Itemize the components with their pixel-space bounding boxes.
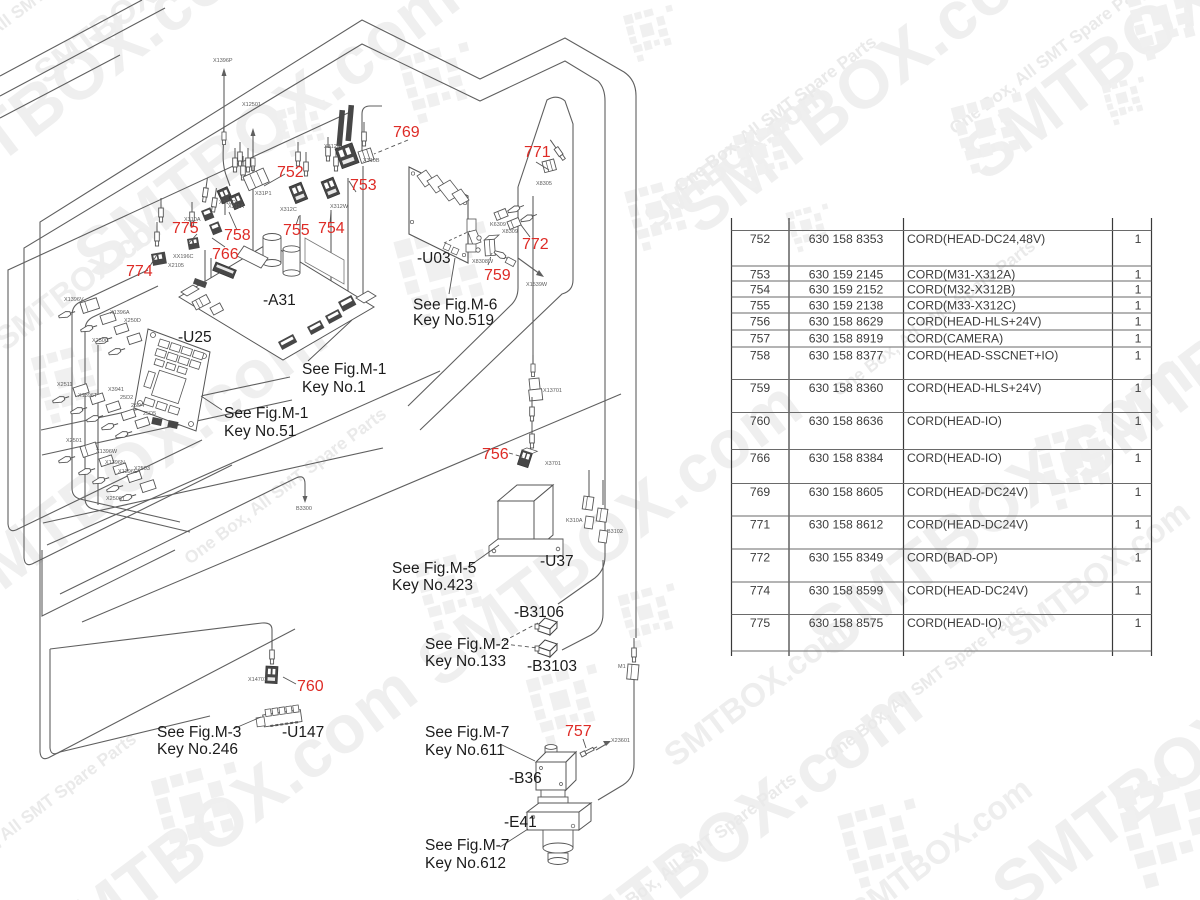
svg-text:CORD(HEAD-DC24,48V): CORD(HEAD-DC24,48V) xyxy=(907,232,1045,246)
svg-text:X310A: X310A xyxy=(184,217,201,223)
svg-text:752: 752 xyxy=(277,164,304,181)
svg-text:Key No.51: Key No.51 xyxy=(224,423,296,440)
svg-text:630 158 8353: 630 158 8353 xyxy=(809,232,884,246)
svg-text:1: 1 xyxy=(1135,332,1142,346)
svg-text:See Fig.M-1: See Fig.M-1 xyxy=(224,405,308,422)
svg-text:X31P1: X31P1 xyxy=(255,191,272,197)
svg-text:630 158 8612: 630 158 8612 xyxy=(809,518,884,532)
svg-text:630 159 2145: 630 159 2145 xyxy=(809,268,884,282)
svg-text:X310B: X310B xyxy=(363,158,380,164)
svg-text:X2503: X2503 xyxy=(134,466,150,472)
svg-text:774: 774 xyxy=(750,584,771,598)
svg-text:757: 757 xyxy=(750,332,771,346)
svg-text:X3701: X3701 xyxy=(545,461,561,467)
svg-text:X8308W: X8308W xyxy=(472,259,494,265)
svg-text:25D4: 25D4 xyxy=(131,403,144,409)
svg-text:-U03: -U03 xyxy=(417,250,451,267)
svg-text:771: 771 xyxy=(750,518,771,532)
svg-text:CORD(M31-X312A): CORD(M31-X312A) xyxy=(907,268,1015,282)
svg-text:756: 756 xyxy=(750,315,771,329)
svg-text:B3300: B3300 xyxy=(296,506,312,512)
svg-text:X13701: X13701 xyxy=(543,388,562,394)
svg-text:754: 754 xyxy=(750,283,771,297)
svg-text:758: 758 xyxy=(750,349,771,363)
svg-text:X1396A: X1396A xyxy=(110,310,130,316)
svg-text:See Fig.M-7: See Fig.M-7 xyxy=(425,724,509,741)
svg-text:X2511: X2511 xyxy=(57,382,73,388)
svg-text:630 158 8605: 630 158 8605 xyxy=(809,485,884,499)
svg-text:753: 753 xyxy=(350,177,377,194)
svg-text:-B3106: -B3106 xyxy=(514,604,564,621)
svg-text:CORD(HEAD-DC24V): CORD(HEAD-DC24V) xyxy=(907,518,1028,532)
svg-text:766: 766 xyxy=(750,451,771,465)
svg-text:CORD(M33-X312C): CORD(M33-X312C) xyxy=(907,299,1016,313)
svg-text:630 158 8599: 630 158 8599 xyxy=(809,584,884,598)
svg-text:775: 775 xyxy=(750,616,771,630)
svg-text:X3941: X3941 xyxy=(108,387,124,393)
svg-text:1: 1 xyxy=(1135,518,1142,532)
svg-text:630 158 8360: 630 158 8360 xyxy=(809,381,884,395)
svg-text:-B36: -B36 xyxy=(509,770,542,787)
svg-text:630 158 8384: 630 158 8384 xyxy=(809,451,884,465)
svg-text:CORD(HEAD-DC24V): CORD(HEAD-DC24V) xyxy=(907,584,1028,598)
svg-text:CORD(HEAD-IO): CORD(HEAD-IO) xyxy=(907,616,1002,630)
svg-text:756: 756 xyxy=(482,446,509,463)
svg-text:X14701: X14701 xyxy=(248,677,267,683)
svg-text:769: 769 xyxy=(750,485,771,499)
svg-text:774: 774 xyxy=(126,263,153,280)
svg-text:771: 771 xyxy=(524,144,551,161)
svg-text:See Fig.M-2: See Fig.M-2 xyxy=(425,636,509,653)
svg-text:X311A: X311A xyxy=(228,204,244,210)
svg-text:CORD(HEAD-HLS+24V): CORD(HEAD-HLS+24V) xyxy=(907,381,1041,395)
svg-text:CORD(M32-X312B): CORD(M32-X312B) xyxy=(907,283,1015,297)
svg-text:630 158 8575: 630 158 8575 xyxy=(809,616,884,630)
svg-text:CORD(HEAD-HLS+24V): CORD(HEAD-HLS+24V) xyxy=(907,315,1041,329)
svg-text:630 159 2152: 630 159 2152 xyxy=(809,283,884,297)
svg-text:M1: M1 xyxy=(618,664,626,670)
svg-text:1: 1 xyxy=(1135,315,1142,329)
svg-text:Key No.519: Key No.519 xyxy=(413,312,494,329)
svg-text:X8309: X8309 xyxy=(502,229,518,235)
svg-text:759: 759 xyxy=(750,381,771,395)
svg-text:769: 769 xyxy=(393,124,420,141)
svg-text:630 158 8919: 630 158 8919 xyxy=(809,332,884,346)
svg-text:X2506T: X2506T xyxy=(106,496,126,502)
svg-text:1: 1 xyxy=(1135,414,1142,428)
svg-text:X1396P: X1396P xyxy=(213,58,233,64)
svg-text:772: 772 xyxy=(522,236,549,253)
svg-text:1: 1 xyxy=(1135,616,1142,630)
svg-text:-U147: -U147 xyxy=(282,724,324,741)
svg-text:CORD(HEAD-DC24V): CORD(HEAD-DC24V) xyxy=(907,485,1028,499)
svg-text:1: 1 xyxy=(1135,485,1142,499)
svg-text:X1396T: X1396T xyxy=(78,393,98,399)
svg-text:B3102: B3102 xyxy=(607,529,623,535)
svg-text:753: 753 xyxy=(750,268,771,282)
svg-text:1: 1 xyxy=(1135,551,1142,565)
svg-text:1: 1 xyxy=(1135,381,1142,395)
svg-text:X250D: X250D xyxy=(124,318,141,324)
svg-text:1: 1 xyxy=(1135,283,1142,297)
svg-text:X1396V: X1396V xyxy=(64,297,84,303)
svg-text:X1539W: X1539W xyxy=(526,282,548,288)
svg-text:See Fig.M-7: See Fig.M-7 xyxy=(425,837,509,854)
svg-text:758: 758 xyxy=(224,227,251,244)
svg-text:Key No.246: Key No.246 xyxy=(157,741,238,758)
svg-text:25D5: 25D5 xyxy=(143,411,156,417)
svg-text:X312A: X312A xyxy=(324,144,341,150)
svg-text:772: 772 xyxy=(750,551,771,565)
svg-text:1: 1 xyxy=(1135,349,1142,363)
svg-text:630 159 2138: 630 159 2138 xyxy=(809,299,884,313)
svg-text:759: 759 xyxy=(484,267,511,284)
svg-text:X2105: X2105 xyxy=(168,263,184,269)
svg-text:755: 755 xyxy=(283,222,310,239)
svg-text:X312W: X312W xyxy=(330,204,349,210)
svg-text:-U25: -U25 xyxy=(178,329,212,346)
svg-text:754: 754 xyxy=(318,220,345,237)
svg-text:760: 760 xyxy=(750,414,771,428)
svg-text:Key No.611: Key No.611 xyxy=(425,742,505,759)
svg-text:752: 752 xyxy=(750,232,771,246)
svg-text:K6309: K6309 xyxy=(490,222,506,228)
svg-text:1: 1 xyxy=(1135,299,1142,313)
svg-text:X8305: X8305 xyxy=(536,181,552,187)
svg-text:757: 757 xyxy=(565,723,592,740)
svg-text:Key No.1: Key No.1 xyxy=(302,379,366,396)
svg-text:-B3103: -B3103 xyxy=(527,658,577,675)
svg-text:CORD(HEAD-IO): CORD(HEAD-IO) xyxy=(907,414,1002,428)
svg-text:X2501: X2501 xyxy=(66,438,82,444)
svg-text:K310A: K310A xyxy=(566,518,583,524)
svg-text:X23601: X23601 xyxy=(611,738,630,744)
svg-text:-A31: -A31 xyxy=(263,292,296,309)
svg-text:X250C: X250C xyxy=(92,338,109,344)
svg-text:Key No.133: Key No.133 xyxy=(425,653,506,670)
svg-text:1: 1 xyxy=(1135,268,1142,282)
svg-text:630 158 8629: 630 158 8629 xyxy=(809,315,884,329)
svg-text:630 155 8349: 630 155 8349 xyxy=(809,551,884,565)
svg-text:760: 760 xyxy=(297,678,324,695)
svg-text:CORD(CAMERA): CORD(CAMERA) xyxy=(907,332,1003,346)
svg-text:CORD(HEAD-IO): CORD(HEAD-IO) xyxy=(907,451,1002,465)
svg-text:-E41: -E41 xyxy=(504,814,537,831)
svg-text:CORD(HEAD-SSCNET+IO): CORD(HEAD-SSCNET+IO) xyxy=(907,349,1058,363)
svg-text:630 158 8636: 630 158 8636 xyxy=(809,414,884,428)
svg-text:X1396N: X1396N xyxy=(105,460,125,466)
svg-text:See Fig.M-6: See Fig.M-6 xyxy=(413,297,497,314)
svg-text:X1396W: X1396W xyxy=(96,449,118,455)
svg-text:Key No.612: Key No.612 xyxy=(425,855,506,872)
svg-text:25D2: 25D2 xyxy=(120,395,133,401)
svg-text:766: 766 xyxy=(212,246,239,263)
svg-text:See Fig.M-3: See Fig.M-3 xyxy=(157,724,241,741)
svg-text:630 158 8377: 630 158 8377 xyxy=(809,349,884,363)
svg-text:1: 1 xyxy=(1135,584,1142,598)
svg-text:X12501: X12501 xyxy=(242,102,261,108)
svg-text:XX196C: XX196C xyxy=(173,254,194,260)
svg-text:1: 1 xyxy=(1135,451,1142,465)
svg-text:X312C: X312C xyxy=(280,207,297,213)
svg-text:See Fig.M-5: See Fig.M-5 xyxy=(392,560,476,577)
svg-text:CORD(BAD-OP): CORD(BAD-OP) xyxy=(907,551,998,565)
svg-text:Key No.423: Key No.423 xyxy=(392,577,473,594)
svg-text:-U37: -U37 xyxy=(540,553,574,570)
svg-text:1: 1 xyxy=(1135,232,1142,246)
svg-text:See Fig.M-1: See Fig.M-1 xyxy=(302,361,386,378)
svg-text:755: 755 xyxy=(750,299,771,313)
